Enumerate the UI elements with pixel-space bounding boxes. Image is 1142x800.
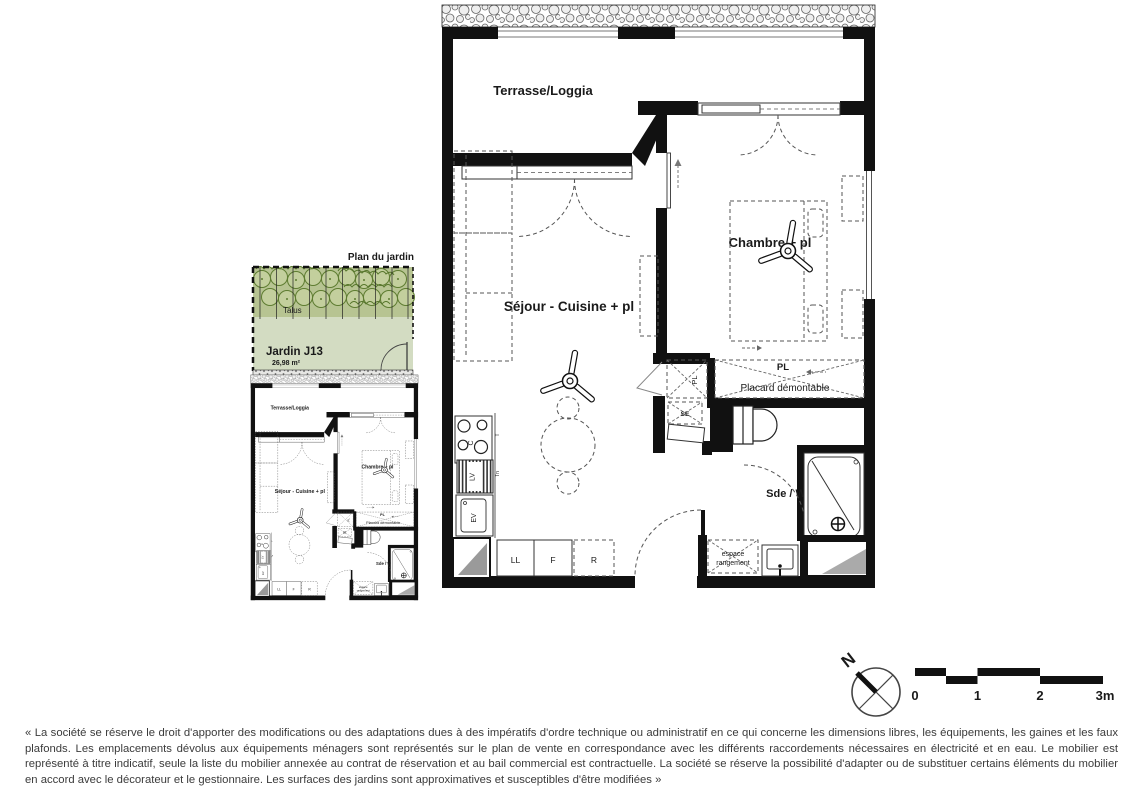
washbasin-icon	[762, 545, 798, 576]
fridge-label: F	[550, 555, 555, 565]
scale-tick-0: 0	[911, 688, 918, 703]
living-room-label: Séjour - Cuisine + pl	[504, 299, 634, 314]
garden-area-label: 26,98 m²	[272, 360, 301, 367]
scale-bar: 0 1 2 3m	[903, 656, 1123, 704]
placard-label: Placard démontable	[741, 383, 830, 394]
counter-tag-bottom: Tn	[495, 471, 501, 477]
hall-closet: PL	[637, 360, 707, 398]
terrace-label: Terrasse/Loggia	[493, 83, 593, 98]
corner-block	[800, 535, 875, 581]
mini-floor-plan	[250, 374, 420, 603]
tech-box-label: SE	[681, 411, 690, 418]
planter-strip	[442, 5, 875, 27]
living-window	[462, 166, 632, 237]
storage-label-line2: rangement	[716, 560, 750, 567]
apartment-plan-group: Terrasse/Loggia Séjour - Cuisine + pl Ch…	[442, 5, 875, 588]
shower-icon	[804, 453, 864, 541]
main-floor-plan: Terrasse/Loggia Séjour - Cuisine + pl Ch…	[440, 3, 880, 595]
storage-space: espace rangement	[708, 540, 758, 573]
talus-label: Talus	[283, 306, 302, 315]
north-label: N	[838, 649, 859, 672]
bedroom-label: Chambre + pl	[729, 235, 812, 250]
bedroom-window	[698, 103, 840, 155]
closet-tag-vertical: PL	[690, 375, 699, 384]
floor-plan-page: Terrasse/Loggia Séjour - Cuisine + pl Ch…	[0, 0, 1142, 800]
ceiling-fan-icon	[540, 350, 595, 403]
legal-disclaimer: « La société se réserve le droit d'appor…	[25, 726, 1118, 788]
counter-tag-top: T	[495, 433, 501, 436]
garden-name-label: Jardin J13	[266, 346, 323, 358]
dishwasher-label: LV	[470, 473, 477, 481]
toilet-icon	[733, 406, 777, 444]
placard-zone: PL Placard démontable	[715, 345, 864, 398]
tech-box: SE	[667, 402, 704, 443]
garden-plan-title: Plan du jardin	[348, 252, 414, 263]
garden-plan: Plan du jardin	[246, 249, 422, 382]
kitchen-block: C LV EV T Tn LL F R	[453, 413, 614, 578]
storage-label-line1: espace	[722, 551, 745, 558]
scale-tick-2: 2	[1036, 688, 1043, 703]
cooktop-label: C	[468, 440, 475, 445]
side-window	[863, 171, 875, 299]
reserve-label: R	[591, 555, 597, 565]
sink-label: EV	[471, 513, 478, 523]
bedroom-door	[667, 153, 682, 208]
scale-tick-1: 1	[974, 688, 981, 703]
closet-tag-label: PL	[777, 362, 789, 373]
entrance-door	[635, 510, 705, 576]
scale-tick-3: 3m	[1096, 688, 1115, 703]
washing-machine-label: LL	[511, 555, 521, 565]
